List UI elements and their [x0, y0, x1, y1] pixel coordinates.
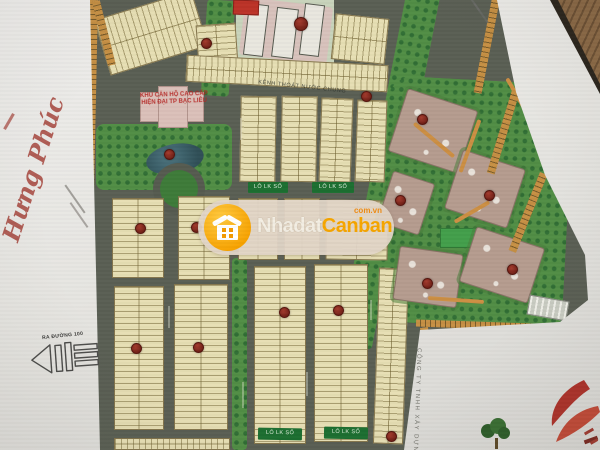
- lot-label: LÔ LK SỐ: [324, 427, 368, 440]
- block-marker: [135, 223, 146, 234]
- block-marker: [386, 431, 397, 442]
- lot-block: [174, 284, 228, 430]
- marketing-overlay-text: KHU CĂN HỘ CAO CẤP HIỆN ĐẠI TP BẠC LIÊU: [118, 90, 230, 108]
- red-building: [233, 0, 260, 15]
- block-marker: [201, 38, 212, 49]
- watermark-brand: NhadatCanban: [257, 215, 392, 238]
- boundary-lots: [420, 327, 444, 441]
- lot-label: LÔ LK SỐ: [258, 428, 302, 441]
- block-marker: [361, 91, 372, 102]
- master-plan-photo: KÊNH THOÁT NƯỚC CHUNG KHU CĂN HỘ CAO CẤP…: [0, 0, 600, 450]
- block-marker: [484, 190, 495, 201]
- block-marker: [164, 149, 175, 160]
- block-marker: [333, 305, 344, 316]
- road-marking: [168, 306, 170, 328]
- lot-block: [112, 198, 164, 278]
- lot-block: [114, 286, 164, 430]
- lot-block: [280, 96, 317, 183]
- median-strip: [232, 258, 247, 450]
- block-marker: [193, 342, 204, 353]
- lot-block: [319, 97, 354, 182]
- road-marking: [242, 382, 244, 408]
- brand-tld: com.vn: [354, 206, 382, 215]
- block-marker: [507, 264, 518, 275]
- lot-block: [254, 266, 306, 444]
- watermark-logo-circle: [204, 204, 251, 251]
- house-window-icon: [222, 228, 226, 232]
- lot-block: [239, 96, 276, 183]
- block-marker: [417, 114, 428, 125]
- brand-part1: Nhadat: [257, 215, 322, 237]
- developer-logo-swoosh-icon: [526, 380, 600, 450]
- tree-icon: [478, 418, 512, 450]
- lot-block: [114, 438, 230, 450]
- lot-block: [314, 264, 368, 442]
- exit-arrow-icon: [26, 340, 100, 382]
- road-marking: [370, 300, 372, 320]
- lot-block: [355, 100, 388, 183]
- block-marker: [279, 307, 290, 318]
- boundary-lots: [81, 0, 98, 450]
- road-marking: [240, 118, 242, 140]
- handwritten-stroke: [3, 113, 15, 130]
- lot-label: LÔ LK SỐ: [312, 182, 354, 193]
- block-marker: [294, 17, 308, 31]
- lot-block: [331, 13, 390, 64]
- house-icon: [217, 225, 238, 240]
- block-marker: [422, 278, 433, 289]
- brand-part2: Canban: [322, 215, 392, 237]
- block-marker: [395, 195, 406, 206]
- watermark-pill: NhadatCanban com.vn: [198, 200, 394, 255]
- road-marking: [306, 372, 308, 396]
- block-marker: [131, 343, 142, 354]
- lot-label: LÔ LK SỐ: [248, 182, 288, 193]
